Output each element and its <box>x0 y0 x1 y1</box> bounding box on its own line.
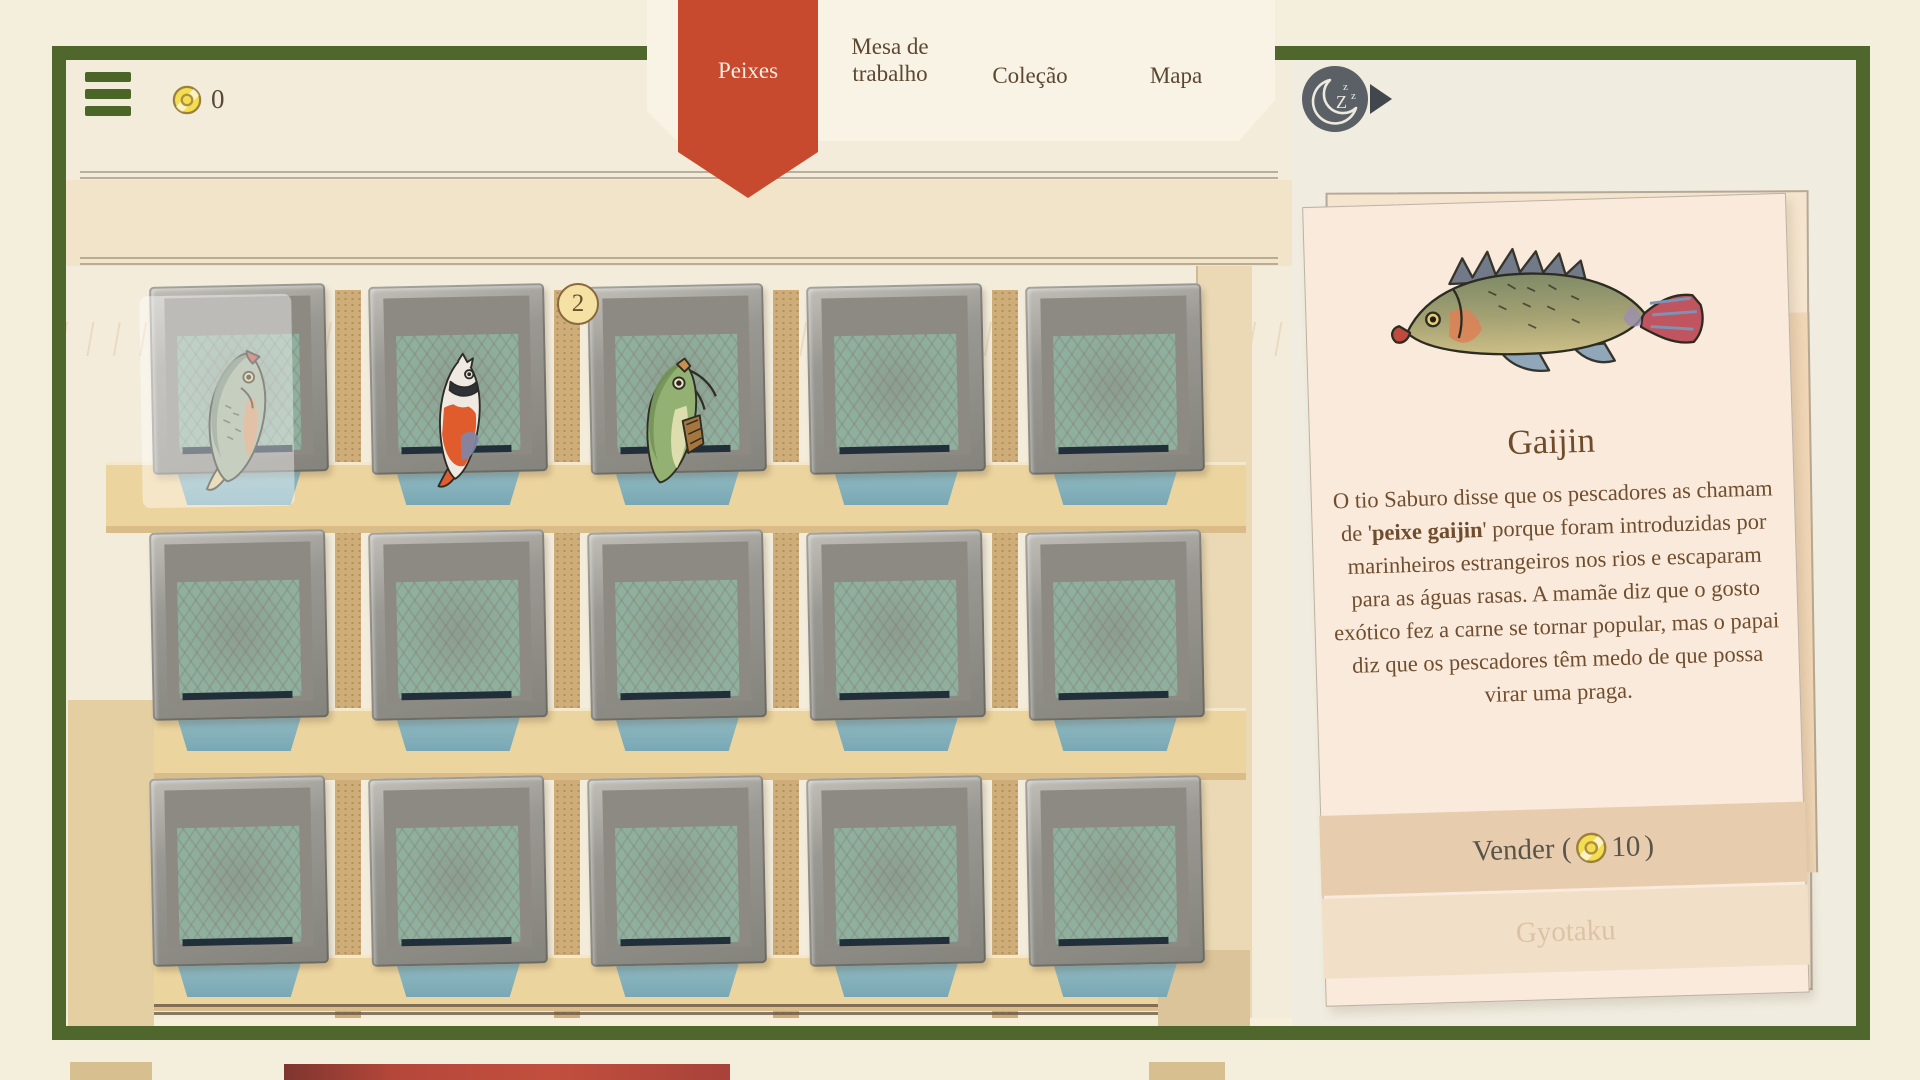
fish-tray[interactable] <box>370 531 546 777</box>
fish-tray[interactable] <box>1027 777 1203 1023</box>
tray-water <box>396 826 520 945</box>
tray-fish <box>623 349 731 491</box>
fish-tray[interactable] <box>1027 285 1203 531</box>
bottom-cutoff-red-banner <box>284 1064 730 1080</box>
tray-frame <box>1025 283 1205 475</box>
fish-tray[interactable] <box>151 531 327 777</box>
koi-fish-icon <box>410 350 506 490</box>
hamburger-bar <box>85 106 131 116</box>
tab-mesa-de-trabalho[interactable]: Mesa de trabalho <box>815 33 965 87</box>
bottom-cutoff-shelf-leg <box>1149 1062 1225 1080</box>
hamburger-bar <box>85 72 131 82</box>
svg-text:z: z <box>1351 90 1356 102</box>
tray-frame <box>806 529 986 721</box>
tray-water <box>1053 334 1177 453</box>
shelf-cornice <box>66 180 1292 266</box>
tray-fish <box>410 350 506 490</box>
fish-tray[interactable] <box>589 531 765 777</box>
tray-frame <box>806 283 986 475</box>
gaijin-fish-illustration <box>1380 230 1715 413</box>
fish-tray[interactable] <box>370 285 546 531</box>
fish-tray[interactable] <box>808 777 984 1023</box>
tray-water <box>1053 826 1177 945</box>
tray-frame <box>368 775 548 967</box>
tray-water <box>615 826 739 945</box>
coin-icon <box>172 85 202 115</box>
tray-water <box>615 580 739 699</box>
tab-mapa[interactable]: Mapa <box>1101 62 1251 89</box>
fish-detail-card: Gaijin O tio Saburo disse que os pescado… <box>1302 193 1810 1007</box>
hamburger-bar <box>85 89 131 99</box>
coin-counter: 0 <box>172 84 225 115</box>
fish-count-badge: 2 <box>557 283 599 325</box>
tray-water <box>834 826 958 945</box>
expand-arrow-icon[interactable] <box>1370 84 1392 114</box>
shelf-trim-line <box>80 263 1278 265</box>
fish-detail-sheet: Gaijin O tio Saburo disse que os pescado… <box>1302 193 1810 1007</box>
tray-frame <box>587 529 767 721</box>
tray-water <box>834 334 958 453</box>
tray-water <box>177 580 301 699</box>
tray-frame <box>149 775 329 967</box>
coin-icon <box>1575 831 1608 864</box>
coin-count: 0 <box>211 84 225 115</box>
shelf-trim-line <box>80 171 1278 173</box>
sell-label-close: ) <box>1644 830 1655 863</box>
description-bold-text: peixe gaijin <box>1372 517 1483 545</box>
selected-highlight <box>139 294 295 509</box>
tray-water <box>177 826 301 945</box>
fish-tray[interactable] <box>151 285 327 531</box>
fish-tray[interactable] <box>808 531 984 777</box>
fish-tray[interactable] <box>370 777 546 1023</box>
fish-tray[interactable] <box>589 777 765 1023</box>
sell-price: 10 <box>1611 830 1641 864</box>
fish-shelf: 2 <box>66 60 1292 1026</box>
fish-description: O tio Saburo disse que os pescadores as … <box>1325 471 1786 715</box>
tab-peixes-label: Peixes <box>678 58 818 84</box>
bottom-cutoff-shelf-leg <box>70 1062 152 1080</box>
fish-tray[interactable] <box>1027 531 1203 777</box>
shelf-trim-line <box>80 177 1278 179</box>
tray-frame <box>806 775 986 967</box>
sell-label: Vender ( <box>1472 832 1572 868</box>
tray-frame <box>1025 529 1205 721</box>
shelf-right-post <box>1196 266 1252 1026</box>
catfish-icon <box>623 349 731 491</box>
tray-frame <box>587 775 767 967</box>
tray-frame <box>368 529 548 721</box>
fish-tray[interactable] <box>808 285 984 531</box>
fish-tray[interactable]: 2 <box>589 285 765 531</box>
svg-text:Z: Z <box>1336 92 1347 112</box>
shelf-left-leg <box>68 700 154 1026</box>
sell-button[interactable]: Vender ( 10) <box>1319 802 1807 896</box>
tab-colecao[interactable]: Coleção <box>955 62 1105 89</box>
gyotaku-button[interactable]: Gyotaku <box>1322 884 1810 978</box>
tray-grid: 2 <box>151 285 1203 1023</box>
tray-water <box>1053 580 1177 699</box>
tray-frame <box>1025 775 1205 967</box>
tray-water <box>834 580 958 699</box>
tray-water <box>396 580 520 699</box>
moon-icon: z Z z <box>1302 66 1368 132</box>
sleep-button[interactable]: z Z z <box>1302 66 1368 132</box>
fish-name-title: Gaijin <box>1310 415 1793 469</box>
shelf-trim-line <box>80 257 1278 259</box>
fish-tray[interactable] <box>151 777 327 1023</box>
game-screen: 2 <box>0 0 1920 1080</box>
hamburger-menu-button[interactable] <box>85 72 131 116</box>
tray-frame <box>149 529 329 721</box>
